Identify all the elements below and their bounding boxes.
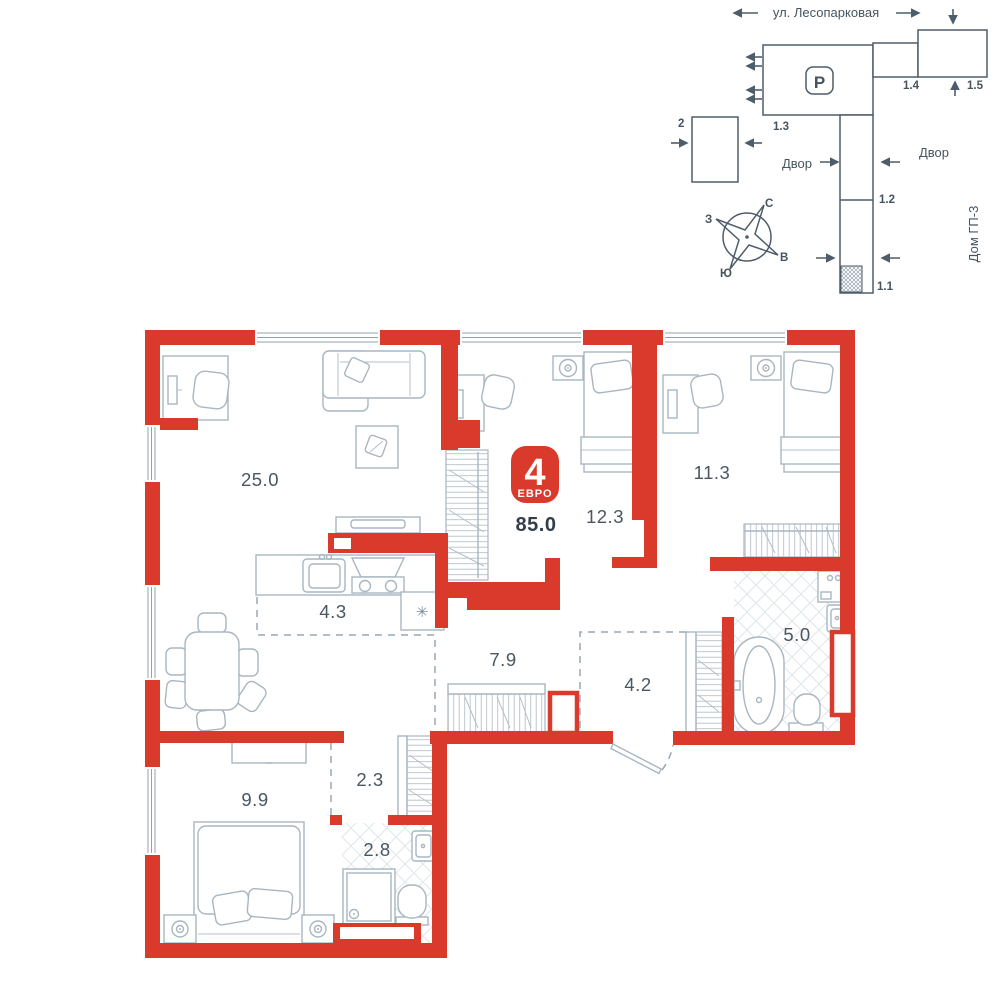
window-icon bbox=[145, 767, 160, 855]
fridge-symbol: ✳ bbox=[416, 603, 429, 621]
building-1-2-label: 1.2 bbox=[879, 194, 895, 206]
yard-right-label: Двор bbox=[919, 145, 949, 160]
window-icon bbox=[663, 330, 787, 345]
ceiling-light-icon bbox=[553, 356, 583, 380]
building-1-4-outline bbox=[873, 43, 918, 77]
compass-west-label: З bbox=[705, 214, 712, 226]
room-area-label-bathroom: 5.0 bbox=[783, 624, 810, 645]
window-icon bbox=[460, 330, 583, 345]
site-plan: ул. Лесопарковая P 1.3 1.4 1.5 1.2 1.1 2… bbox=[671, 5, 987, 293]
wardrobe-icon bbox=[398, 736, 437, 817]
compass-south-label: Ю bbox=[720, 268, 732, 280]
building-2-label: 2 bbox=[678, 118, 684, 130]
wardrobe-icon bbox=[744, 524, 847, 557]
kitchen-counter-icon bbox=[256, 555, 444, 595]
room-area-label-corridor: 2.3 bbox=[356, 769, 383, 790]
highlighted-section-mark bbox=[841, 266, 862, 292]
single-bed-icon bbox=[781, 352, 847, 472]
neighbor-house-label: Дом ГП-3 bbox=[966, 206, 981, 263]
wardrobe-icon bbox=[448, 684, 545, 732]
toilet-icon bbox=[396, 885, 428, 925]
duct-shaft bbox=[832, 632, 853, 715]
apartment-type-badge: 4 ЕВРО 85.0 bbox=[511, 446, 559, 536]
dining-table-icon bbox=[165, 613, 269, 731]
floorplan-canvas: ул. Лесопарковая P 1.3 1.4 1.5 1.2 1.1 2… bbox=[0, 0, 1000, 1000]
desk-icon bbox=[663, 373, 725, 433]
room-area-label-living: 25.0 bbox=[241, 469, 279, 490]
double-bed-icon bbox=[194, 822, 304, 945]
sofa-icon bbox=[323, 351, 425, 411]
floorplan-page: ул. Лесопарковая P 1.3 1.4 1.5 1.2 1.1 2… bbox=[0, 0, 1000, 1000]
building-1-4-label: 1.4 bbox=[903, 80, 920, 92]
compass-rose-icon: С З В Ю bbox=[705, 198, 788, 280]
wardrobe-icon bbox=[446, 450, 488, 580]
window-icon bbox=[255, 330, 380, 345]
bathtub-icon bbox=[734, 637, 784, 734]
street-name-label: ул. Лесопарковая bbox=[773, 5, 879, 20]
room-area-label-kitchen: 4.3 bbox=[319, 601, 346, 622]
window-icon bbox=[145, 585, 160, 680]
tv-console-icon bbox=[336, 517, 420, 533]
badge-layout-type: ЕВРО bbox=[517, 488, 552, 500]
entry-door-icon bbox=[611, 744, 673, 774]
yard-left-label: Двор bbox=[782, 156, 812, 171]
coffee-table-icon bbox=[356, 426, 398, 468]
wardrobe-icon bbox=[686, 632, 722, 732]
ceiling-light-icon bbox=[751, 356, 781, 380]
window-icon bbox=[145, 425, 160, 482]
badge-total-area: 85.0 bbox=[516, 514, 557, 536]
room-area-label-entry: 4.2 bbox=[624, 674, 651, 695]
building-2-outline bbox=[692, 117, 738, 182]
furniture-layer: ✳ bbox=[163, 351, 851, 945]
duct-shaft bbox=[550, 693, 577, 733]
room-area-label-bedroom3: 9.9 bbox=[241, 789, 268, 810]
building-1-1-label: 1.1 bbox=[877, 281, 894, 293]
building-1-5-outline bbox=[918, 30, 987, 77]
parking-icon-letter: P bbox=[814, 73, 825, 92]
compass-north-label: С bbox=[765, 198, 773, 210]
room-area-label-bedroom1: 12.3 bbox=[586, 506, 624, 527]
shower-icon bbox=[343, 869, 395, 925]
sink-icon bbox=[412, 831, 435, 861]
room-area-label-shower: 2.8 bbox=[363, 839, 390, 860]
nightstand-lamp-icon bbox=[164, 915, 196, 943]
nightstand-lamp-icon bbox=[302, 915, 334, 943]
room-area-label-bedroom2: 11.3 bbox=[694, 462, 731, 483]
building-1-5-label: 1.5 bbox=[967, 80, 984, 92]
apartment-plan: ✳ bbox=[145, 330, 855, 958]
compass-east-label: В bbox=[780, 252, 788, 264]
desk-icon bbox=[163, 356, 230, 420]
building-1-3-label: 1.3 bbox=[773, 121, 789, 133]
room-area-label-hallway: 7.9 bbox=[489, 649, 516, 670]
stove-hood-icon bbox=[352, 558, 404, 577]
